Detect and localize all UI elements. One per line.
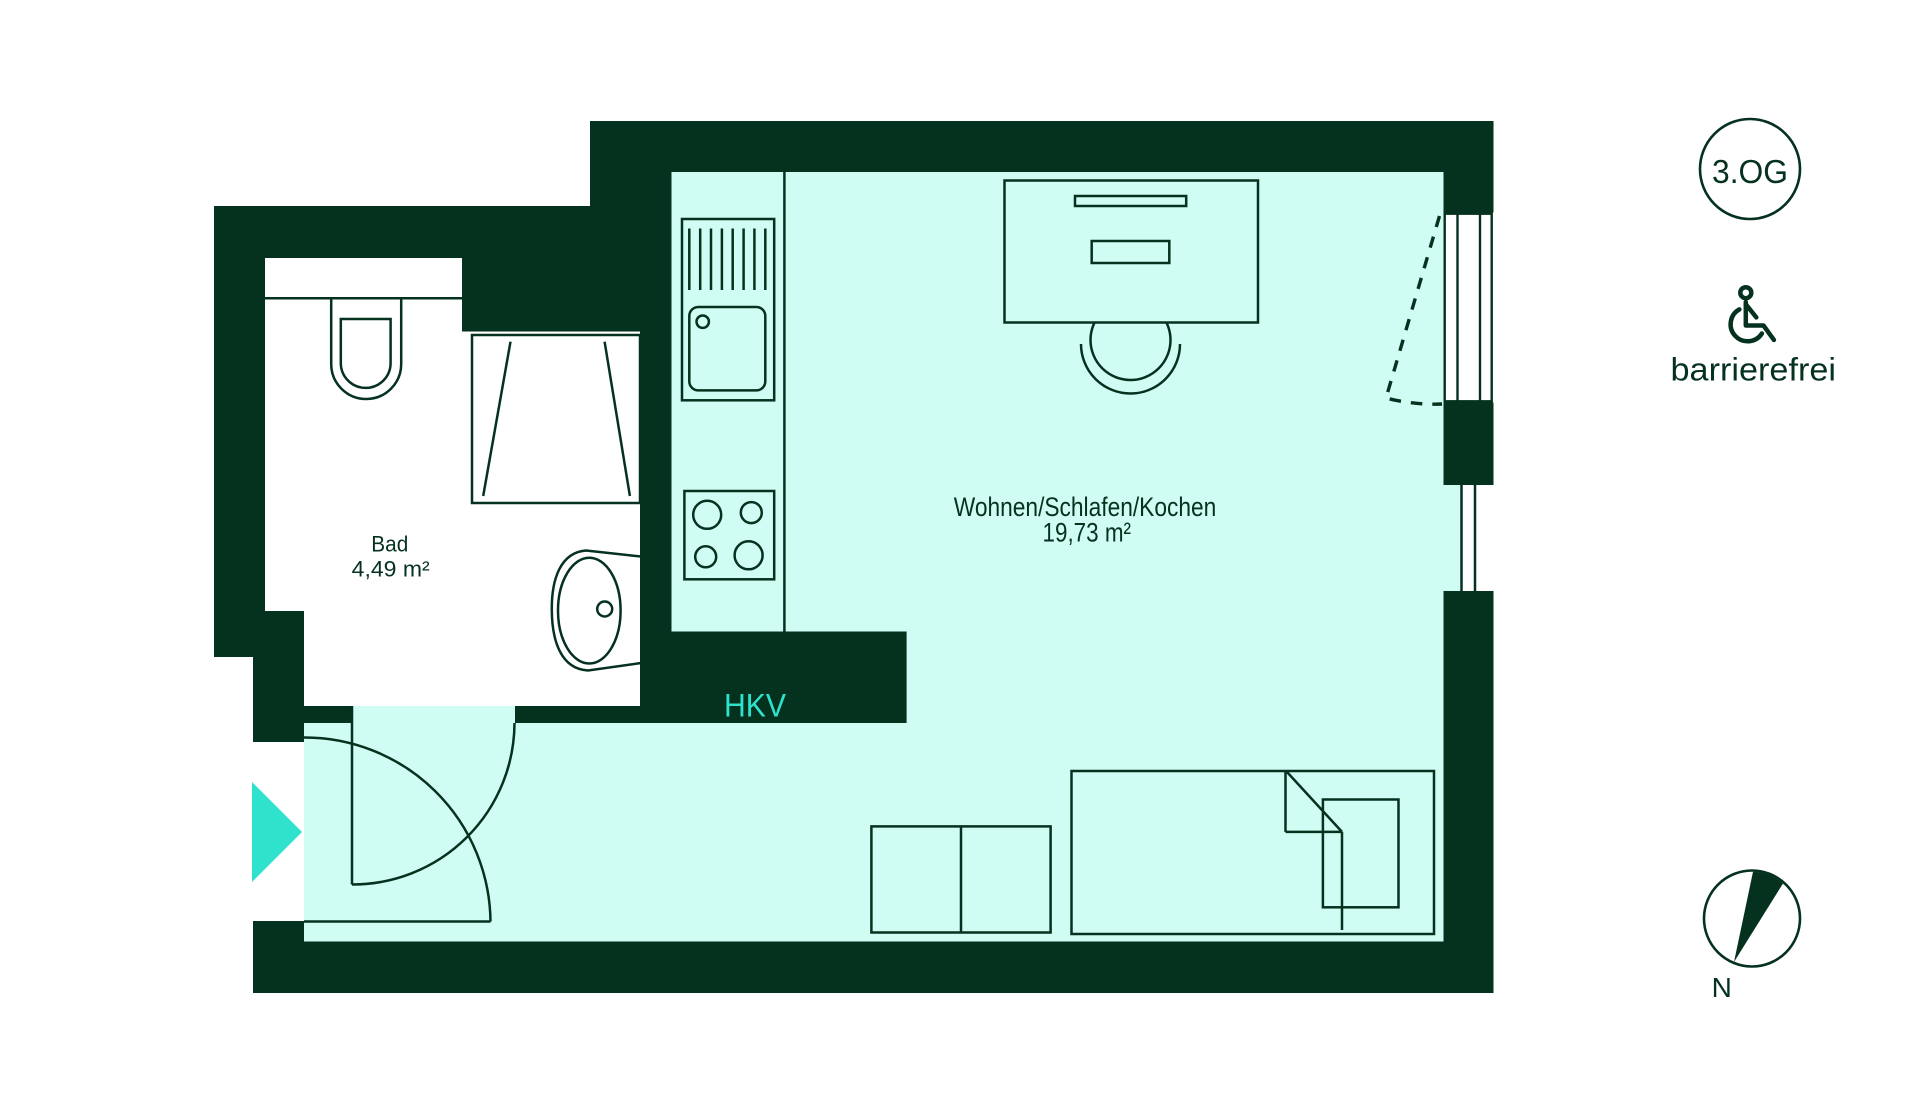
- svg-text:19,73 m²: 19,73 m²: [1043, 518, 1132, 548]
- svg-text:HKV: HKV: [724, 688, 787, 724]
- svg-text:barrierefrei: barrierefrei: [1671, 352, 1837, 388]
- svg-text:3.OG: 3.OG: [1712, 153, 1788, 190]
- svg-text:4,49 m²: 4,49 m²: [352, 557, 430, 582]
- svg-text:Bad: Bad: [371, 532, 408, 557]
- svg-text:N: N: [1712, 972, 1732, 1003]
